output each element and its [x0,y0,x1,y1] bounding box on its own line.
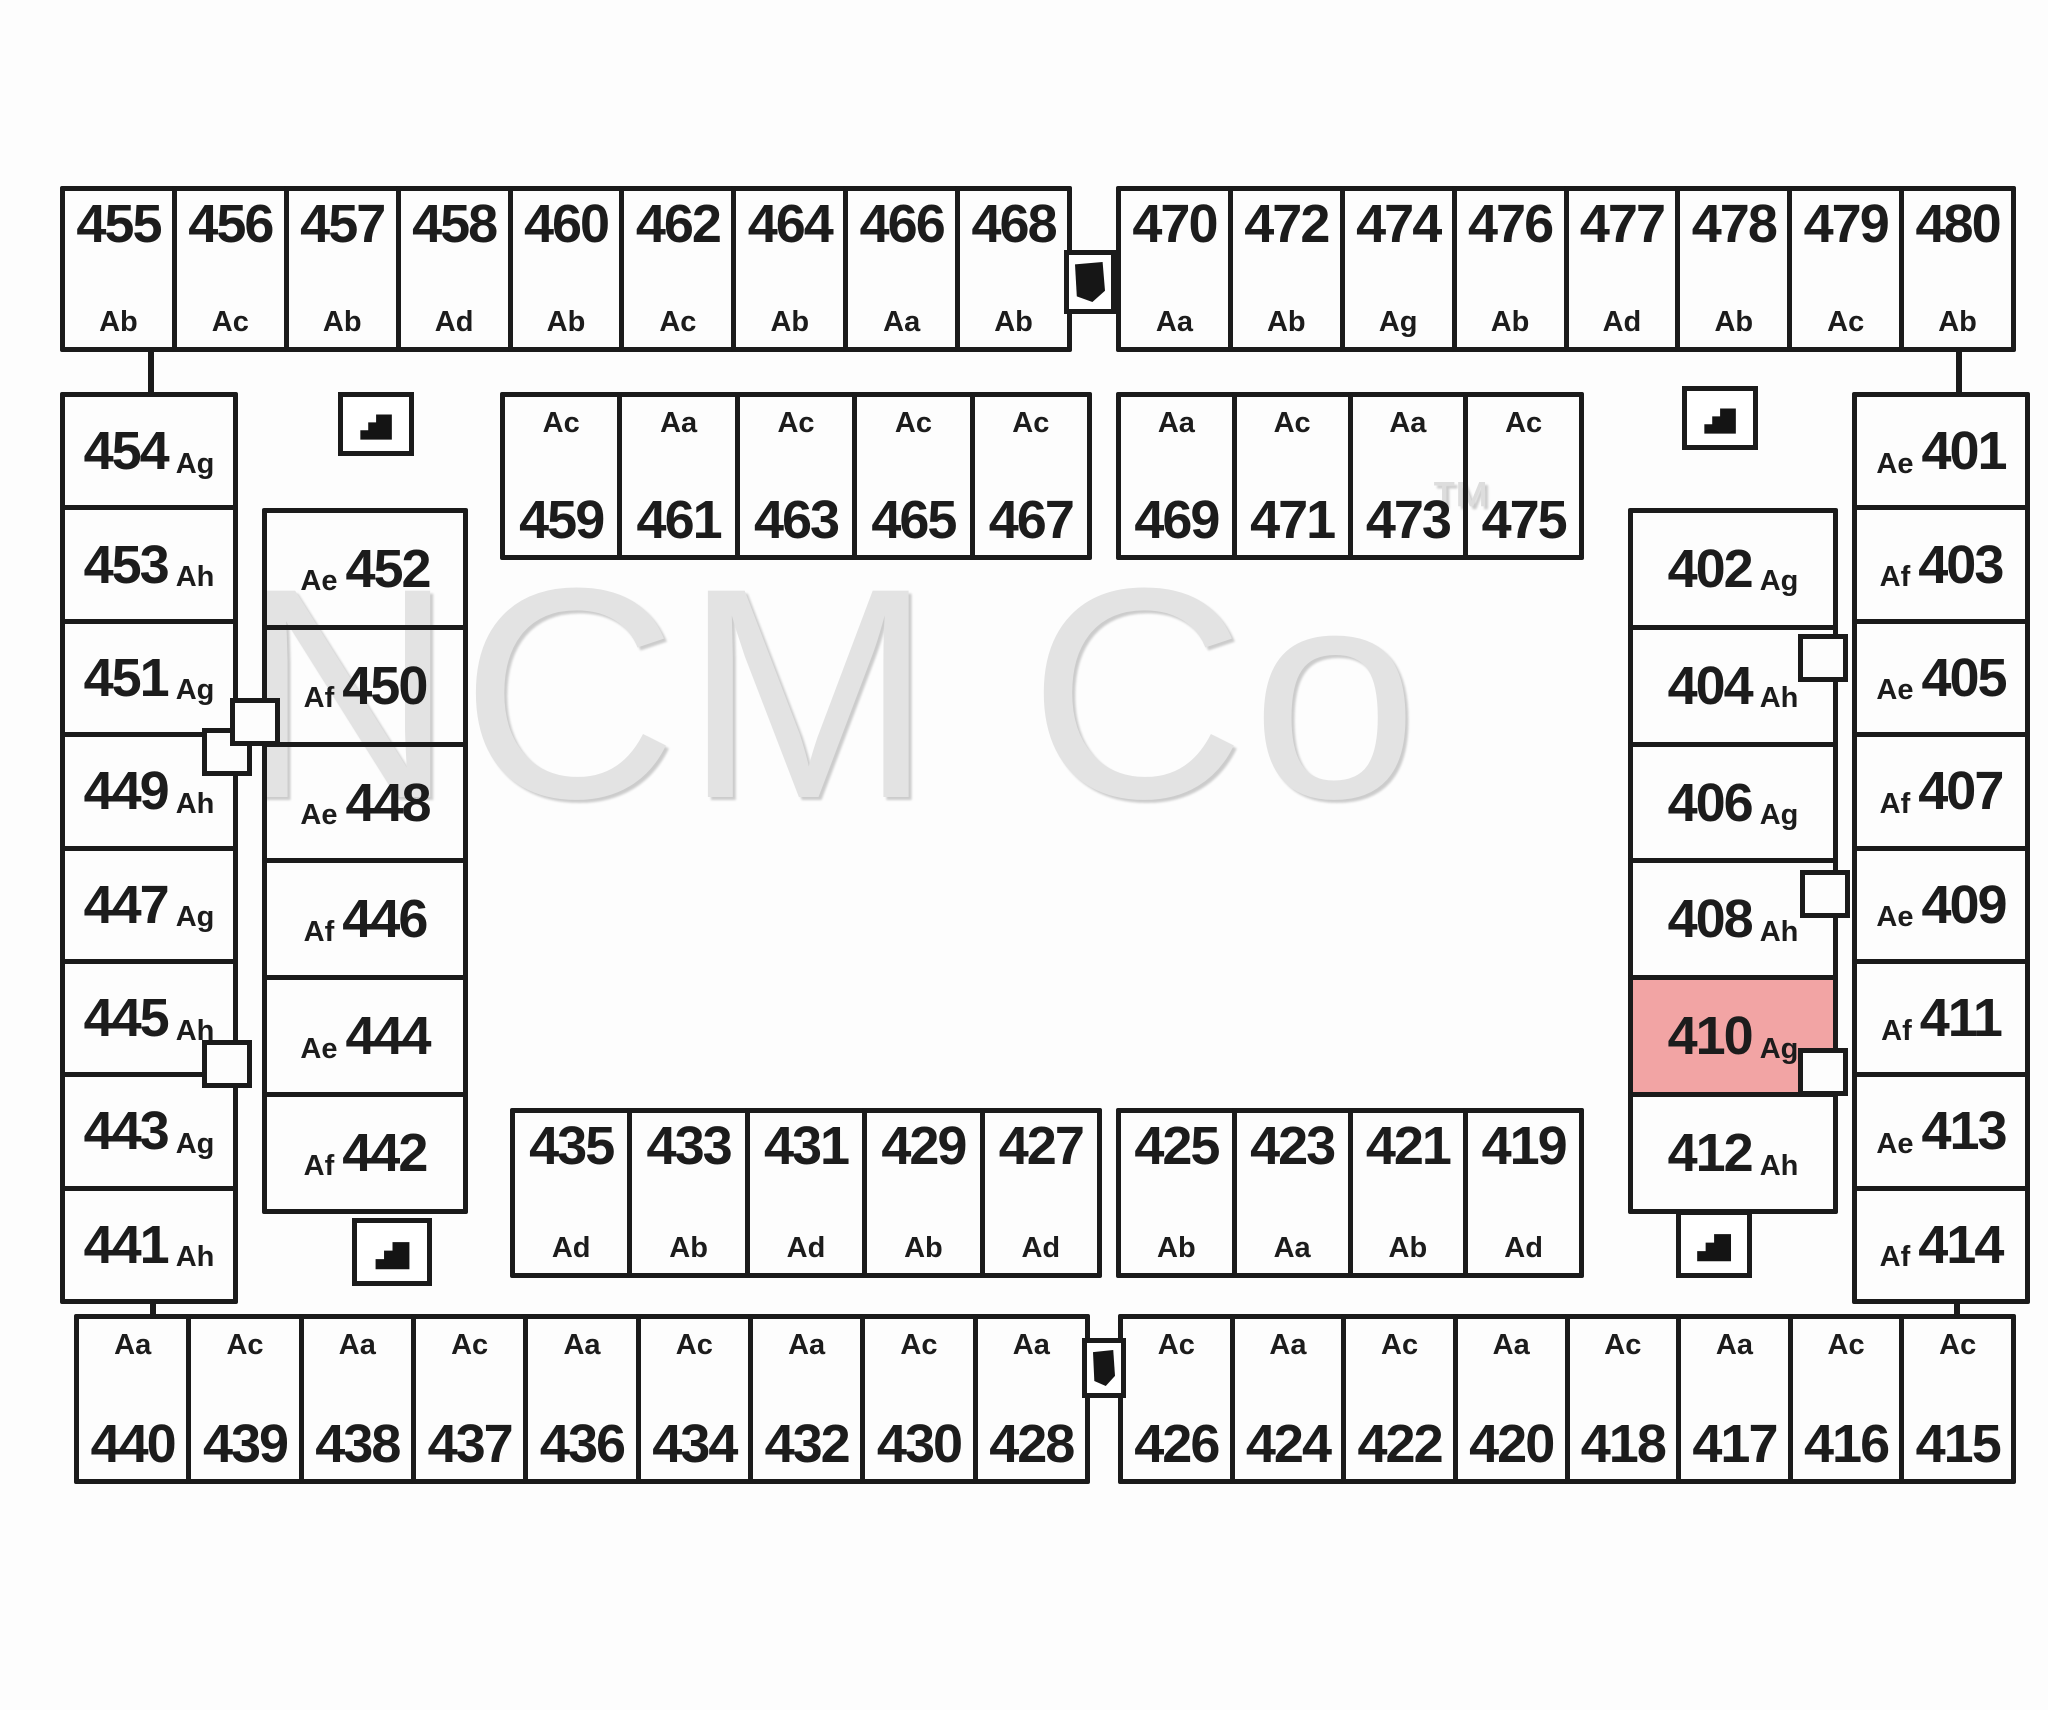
bottom-outer-left-row: Aa440Ac439Aa438Ac437Aa436Ac434Aa432Ac430… [74,1314,1090,1484]
top-outer-right-row: 470Aa472Ab474Ag476Ab477Ad478Ab479Ac480Ab [1116,186,2016,352]
unit-468[interactable]: 468Ab [955,186,1072,352]
unit-type-label: Ac [900,1331,937,1360]
unit-type-label: Ae [1876,903,1913,932]
unit-number: 428 [989,1417,1073,1471]
unit-440[interactable]: Aa440 [74,1314,191,1484]
unit-448[interactable]: Ae448 [262,742,468,864]
unit-number: 452 [345,542,429,596]
top-outer-left-row: 455Ab456Ac457Ab458Ad460Ab462Ac464Ab466Aa… [60,186,1072,352]
unit-number: 449 [84,764,168,818]
unit-466[interactable]: 466Aa [843,186,960,352]
unit-number: 426 [1134,1417,1218,1471]
stairs-icon [1676,1210,1752,1278]
unit-number: 430 [877,1417,961,1471]
unit-422[interactable]: Ac422 [1341,1314,1458,1484]
unit-number: 473 [1366,493,1450,547]
unit-number: 469 [1134,493,1218,547]
unit-number: 458 [412,197,496,251]
unit-452[interactable]: Ae452 [262,508,468,630]
unit-type-label: Ac [1505,409,1542,438]
unit-number: 401 [1921,424,2005,478]
unit-number: 460 [524,197,608,251]
unit-type-label: Ae [1876,676,1913,705]
unit-439[interactable]: Ac439 [186,1314,303,1484]
unit-type-label: Ac [659,308,696,337]
unit-476[interactable]: 476Ab [1452,186,1569,352]
unit-number: 417 [1692,1417,1776,1471]
unit-401[interactable]: Ae401 [1852,392,2030,510]
unit-type-label: Af [1880,790,1911,819]
unit-number: 434 [652,1417,736,1471]
unit-405[interactable]: Ae405 [1852,619,2030,737]
unit-424[interactable]: Aa424 [1230,1314,1347,1484]
unit-number: 461 [637,493,721,547]
unit-type-label: Ae [300,1035,337,1064]
unit-type-label: Ag [1760,567,1799,596]
unit-type-label: Ad [435,308,474,337]
unit-type-label: Ab [669,1234,708,1263]
unit-419[interactable]: 419Ad [1463,1108,1584,1278]
unit-450[interactable]: Af450 [262,625,468,747]
unit-number: 404 [1668,659,1752,713]
unit-409[interactable]: Ae409 [1852,846,2030,964]
unit-number: 437 [428,1417,512,1471]
unit-type-label: Ag [1379,308,1418,337]
unit-number: 421 [1366,1119,1450,1173]
unit-type-label: Ac [1828,1331,1865,1360]
unit-407[interactable]: Af407 [1852,732,2030,850]
unit-number: 414 [1918,1218,2002,1272]
unit-type-label: Ac [1939,1331,1976,1360]
unit-413[interactable]: Ae413 [1852,1072,2030,1190]
unit-455[interactable]: 455Ab [60,186,177,352]
unit-type-label: Ac [1158,1331,1195,1360]
unit-443[interactable]: 443Ag [60,1072,238,1190]
breezeway-connector-icon [1064,250,1116,314]
unit-type-label: Ac [1274,409,1311,438]
unit-432[interactable]: Aa432 [748,1314,865,1484]
unit-number: 468 [972,197,1056,251]
unit-type-label: Aa [1013,1331,1050,1360]
unit-number: 442 [342,1126,426,1180]
stairs-icon [352,1218,432,1286]
bottom-inner-right-row: 425Ab423Aa421Ab419Ad [1116,1108,1584,1278]
unit-467[interactable]: Ac467 [970,392,1092,560]
unit-type-label: Aa [1716,1331,1753,1360]
unit-number: 409 [1921,878,2005,932]
unit-type-label: Ab [1157,1234,1196,1263]
unit-number: 471 [1250,493,1334,547]
unit-number: 407 [1918,764,2002,818]
unit-451[interactable]: 451Ag [60,619,238,737]
unit-type-label: Ac [895,409,932,438]
site-plan: NCM Co™ 455Ab456Ac457Ab458Ad460Ab462Ac46… [0,0,2048,1710]
left-outer-column: 454Ag453Ah451Ag449Ah447Ag445Ah443Ag441Ah [60,392,238,1304]
unit-454[interactable]: 454Ag [60,392,238,510]
unit-number: 441 [84,1218,168,1272]
unit-433[interactable]: 433Ab [627,1108,749,1278]
unit-number: 403 [1918,538,2002,592]
unit-438[interactable]: Aa438 [299,1314,416,1484]
door-notch [1800,870,1850,918]
unit-459[interactable]: Ac459 [500,392,622,560]
unit-403[interactable]: Af403 [1852,505,2030,623]
unit-type-label: Ab [904,1234,943,1263]
unit-number: 472 [1244,197,1328,251]
unit-465[interactable]: Ac465 [852,392,974,560]
unit-number: 450 [342,659,426,713]
unit-469[interactable]: Aa469 [1116,392,1237,560]
unit-470[interactable]: 470Aa [1116,186,1233,352]
unit-number: 465 [871,493,955,547]
unit-456[interactable]: 456Ac [172,186,289,352]
unit-462[interactable]: 462Ac [619,186,736,352]
unit-457[interactable]: 457Ab [284,186,401,352]
unit-type-label: Ac [1381,1331,1418,1360]
unit-type-label: Ae [1876,450,1913,479]
unit-477[interactable]: 477Ad [1564,186,1681,352]
unit-461[interactable]: Aa461 [617,392,739,560]
unit-number: 447 [84,878,168,932]
unit-416[interactable]: Ac416 [1788,1314,1905,1484]
door-notch [1798,634,1848,682]
unit-number: 455 [76,197,160,251]
breezeway-connector-icon [1082,1338,1126,1398]
unit-type-label: Ah [1760,1152,1799,1181]
wall-segment [150,1302,156,1316]
unit-type-label: Ag [1760,1035,1799,1064]
unit-444[interactable]: Ae444 [262,975,468,1097]
unit-type-label: Ag [176,676,215,705]
unit-number: 474 [1356,197,1440,251]
unit-472[interactable]: 472Ab [1228,186,1345,352]
unit-type-label: Ab [323,308,362,337]
unit-type-label: Ag [1760,801,1799,830]
unit-type-label: Ab [547,308,586,337]
unit-478[interactable]: 478Ab [1675,186,1792,352]
unit-number: 454 [84,424,168,478]
bottom-inner-left-row: 435Ad433Ab431Ad429Ab427Ad [510,1108,1102,1278]
unit-type-label: Ac [1604,1331,1641,1360]
unit-type-label: Af [1880,1243,1911,1272]
unit-420[interactable]: Aa420 [1453,1314,1570,1484]
unit-type-label: Ac [212,308,249,337]
unit-number: 448 [345,776,429,830]
unit-type-label: Aa [883,308,920,337]
unit-number: 415 [1916,1417,2000,1471]
unit-463[interactable]: Ac463 [735,392,857,560]
unit-number: 444 [345,1009,429,1063]
right-outer-column: Ae401Af403Ae405Af407Ae409Af411Ae413Af414 [1852,392,2030,1304]
unit-471[interactable]: Ac471 [1232,392,1353,560]
unit-480[interactable]: 480Ab [1899,186,2016,352]
unit-type-label: Ac [1827,308,1864,337]
door-notch [202,1040,252,1088]
unit-number: 475 [1482,493,1566,547]
unit-number: 431 [764,1119,848,1173]
unit-number: 459 [519,493,603,547]
unit-number: 405 [1921,651,2005,705]
unit-436[interactable]: Aa436 [523,1314,640,1484]
unit-type-label: Ab [1491,308,1530,337]
unit-type-label: Af [1881,1017,1912,1046]
unit-number: 457 [300,197,384,251]
unit-type-label: Ab [1389,1234,1428,1263]
unit-number: 439 [203,1417,287,1471]
unit-number: 432 [765,1417,849,1471]
unit-number: 436 [540,1417,624,1471]
unit-number: 410 [1668,1009,1752,1063]
unit-475[interactable]: Ac475 [1463,392,1584,560]
unit-type-label: Ah [1760,684,1799,713]
unit-type-label: Ah [176,790,215,819]
unit-type-label: Aa [1158,409,1195,438]
unit-425[interactable]: 425Ab [1116,1108,1237,1278]
unit-number: 429 [881,1119,965,1173]
unit-number: 424 [1246,1417,1330,1471]
unit-411[interactable]: Af411 [1852,959,2030,1077]
unit-number: 440 [91,1417,175,1471]
unit-type-label: Ah [1760,918,1799,947]
unit-type-label: Ab [1267,308,1306,337]
unit-412[interactable]: 412Ah [1628,1092,1838,1214]
unit-479[interactable]: 479Ac [1787,186,1904,352]
unit-number: 443 [84,1104,168,1158]
unit-type-label: Aa [1493,1331,1530,1360]
unit-428[interactable]: Aa428 [973,1314,1090,1484]
unit-number: 408 [1668,892,1752,946]
unit-number: 470 [1132,197,1216,251]
unit-type-label: Af [304,684,335,713]
unit-415[interactable]: Ac415 [1899,1314,2016,1484]
top-inner-left-row: Ac459Aa461Ac463Ac465Ac467 [500,392,1092,560]
unit-type-label: Ac [676,1331,713,1360]
unit-type-label: Af [1880,563,1911,592]
unit-type-label: Af [304,1152,335,1181]
unit-type-label: Ac [451,1331,488,1360]
unit-type-label: Ad [1603,308,1642,337]
unit-number: 420 [1469,1417,1553,1471]
unit-458[interactable]: 458Ad [396,186,513,352]
left-inner-column: Ae452Af450Ae448Af446Ae444Af442 [262,508,468,1214]
unit-number: 427 [999,1119,1083,1173]
unit-number: 406 [1668,776,1752,830]
unit-type-label: Ab [770,308,809,337]
unit-type-label: Ad [1021,1234,1060,1263]
unit-460[interactable]: 460Ab [508,186,625,352]
unit-type-label: Ag [176,450,215,479]
unit-type-label: Ac [1012,409,1049,438]
unit-number: 463 [754,493,838,547]
unit-type-label: Ah [176,563,215,592]
unit-417[interactable]: Aa417 [1676,1314,1793,1484]
unit-number: 477 [1580,197,1664,251]
stairs-icon [1682,386,1758,450]
wall-segment [1956,350,1962,394]
unit-number: 467 [989,493,1073,547]
wall-segment [148,350,154,394]
unit-402[interactable]: 402Ag [1628,508,1838,630]
unit-type-label: Aa [339,1331,376,1360]
top-inner-right-row: Aa469Ac471Aa473Ac475 [1116,392,1584,560]
unit-number: 438 [315,1417,399,1471]
unit-type-label: Aa [114,1331,151,1360]
unit-453[interactable]: 453Ah [60,505,238,623]
unit-type-label: Ab [1714,308,1753,337]
unit-number: 425 [1134,1119,1218,1173]
unit-number: 416 [1804,1417,1888,1471]
unit-number: 478 [1692,197,1776,251]
unit-number: 435 [529,1119,613,1173]
unit-423[interactable]: 423Aa [1232,1108,1353,1278]
unit-number: 402 [1668,542,1752,596]
right-inner-column: 402Ag404Ah406Ag408Ah410Ag412Ah [1628,508,1838,1214]
unit-type-label: Aa [1274,1234,1311,1263]
unit-number: 445 [84,991,168,1045]
unit-431[interactable]: 431Ad [745,1108,867,1278]
unit-number: 418 [1581,1417,1665,1471]
unit-number: 479 [1804,197,1888,251]
unit-type-label: Ae [300,801,337,830]
unit-type-label: Ad [1504,1234,1543,1263]
unit-type-label: Aa [1156,308,1193,337]
unit-type-label: Ac [777,409,814,438]
unit-type-label: Aa [1389,409,1426,438]
bottom-outer-right-row: Ac426Aa424Ac422Aa420Ac418Aa417Ac416Ac415 [1118,1314,2016,1484]
unit-type-label: Ad [787,1234,826,1263]
unit-number: 456 [188,197,272,251]
unit-number: 422 [1358,1417,1442,1471]
unit-number: 451 [84,651,168,705]
unit-type-label: Ag [176,903,215,932]
unit-414[interactable]: Af414 [1852,1186,2030,1304]
unit-type-label: Ab [994,308,1033,337]
unit-number: 446 [342,892,426,946]
unit-406[interactable]: 406Ag [1628,742,1838,864]
unit-473[interactable]: Aa473 [1348,392,1469,560]
unit-426[interactable]: Ac426 [1118,1314,1235,1484]
unit-number: 411 [1920,991,2001,1045]
unit-number: 462 [636,197,720,251]
unit-number: 464 [748,197,832,251]
door-notch [1798,1048,1848,1096]
unit-type-label: Aa [1269,1331,1306,1360]
unit-437[interactable]: Ac437 [411,1314,528,1484]
unit-number: 412 [1668,1126,1752,1180]
unit-type-label: Aa [788,1331,825,1360]
unit-429[interactable]: 429Ab [862,1108,984,1278]
stairs-icon [338,392,414,456]
unit-type-label: Ae [300,567,337,596]
wall-segment [1954,1302,1960,1316]
unit-type-label: Ad [552,1234,591,1263]
unit-427[interactable]: 427Ad [980,1108,1102,1278]
unit-435[interactable]: 435Ad [510,1108,632,1278]
unit-number: 419 [1482,1119,1566,1173]
unit-type-label: Aa [660,409,697,438]
unit-421[interactable]: 421Ab [1348,1108,1469,1278]
unit-type-label: Ac [226,1331,263,1360]
unit-number: 423 [1250,1119,1334,1173]
unit-type-label: Ab [99,308,138,337]
unit-418[interactable]: Ac418 [1565,1314,1682,1484]
unit-474[interactable]: 474Ag [1340,186,1457,352]
unit-464[interactable]: 464Ab [731,186,848,352]
unit-type-label: Ae [1876,1130,1913,1159]
unit-446[interactable]: Af446 [262,858,468,980]
unit-type-label: Ab [1938,308,1977,337]
unit-number: 433 [647,1119,731,1173]
unit-number: 466 [860,197,944,251]
unit-number: 476 [1468,197,1552,251]
unit-type-label: Ah [176,1243,215,1272]
unit-number: 480 [1916,197,2000,251]
unit-type-label: Ag [176,1130,215,1159]
unit-447[interactable]: 447Ag [60,846,238,964]
unit-441[interactable]: 441Ah [60,1186,238,1304]
unit-number: 453 [84,538,168,592]
unit-type-label: Af [304,918,335,947]
unit-434[interactable]: Ac434 [636,1314,753,1484]
unit-430[interactable]: Ac430 [860,1314,977,1484]
unit-type-label: Aa [563,1331,600,1360]
unit-442[interactable]: Af442 [262,1092,468,1214]
unit-number: 413 [1921,1104,2005,1158]
door-notch [230,698,280,746]
unit-type-label: Ac [543,409,580,438]
